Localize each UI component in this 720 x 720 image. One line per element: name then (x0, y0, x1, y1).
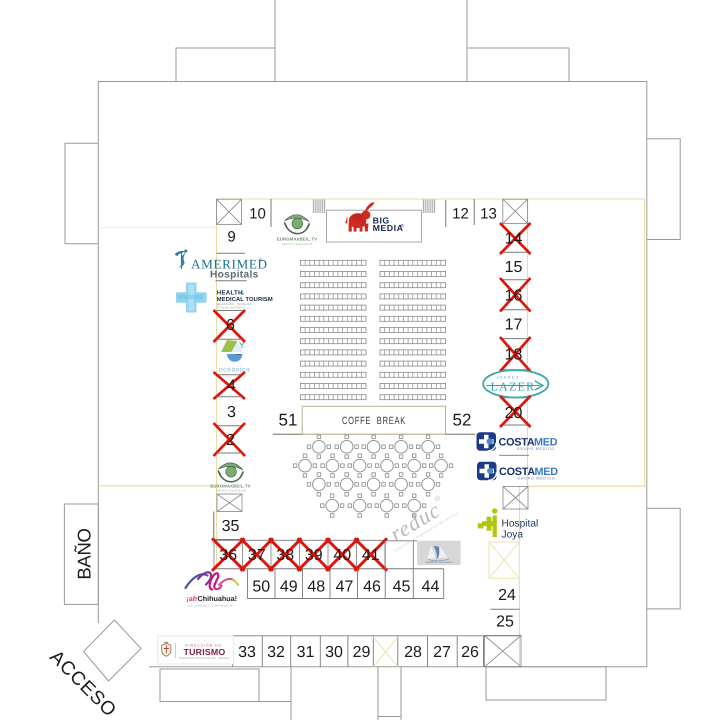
svg-text:9: 9 (227, 228, 235, 245)
svg-text:MEDIA: MEDIA (373, 223, 404, 233)
svg-text:33: 33 (238, 644, 256, 661)
svg-text:Hospitals: Hospitals (210, 270, 259, 281)
svg-text:LAZER: LAZER (491, 380, 536, 394)
svg-text:GRUPO MÉDICO: GRUPO MÉDICO (517, 446, 555, 451)
svg-text:Chihuahua!: Chihuahua! (198, 594, 238, 603)
svg-text:¡ah: ¡ah (187, 595, 198, 603)
svg-text:oceánica: oceánica (219, 367, 250, 374)
svg-text:13: 13 (480, 205, 497, 222)
svg-text:44: 44 (422, 578, 440, 595)
svg-text:6: 6 (226, 317, 235, 334)
svg-text:28: 28 (404, 644, 422, 661)
svg-text:31: 31 (297, 644, 315, 661)
svg-text:3: 3 (227, 404, 236, 421)
svg-text:Joya: Joya (502, 530, 524, 541)
svg-text:25: 25 (496, 614, 514, 631)
svg-text:17: 17 (505, 316, 523, 333)
svg-text:46: 46 (363, 578, 381, 595)
svg-text:RIVIERA NAYARIT: RIVIERA NAYARIT (217, 306, 243, 309)
svg-text:COFFE BREAK: COFFE BREAK (342, 415, 406, 427)
svg-text:GOBIERNO MUNICIPAL DE JIMÉNEZ: GOBIERNO MUNICIPAL DE JIMÉNEZ (179, 656, 230, 660)
svg-text:2: 2 (226, 432, 235, 449)
svg-text:35: 35 (222, 518, 240, 535)
svg-text:40: 40 (333, 547, 351, 564)
svg-text:20: 20 (505, 405, 523, 422)
svg-text:MAZATLAN · SINALOA: MAZATLAN · SINALOA (217, 302, 252, 306)
svg-text:Hospital: Hospital (502, 519, 539, 530)
svg-text:BAÑO: BAÑO (74, 528, 95, 579)
svg-text:36: 36 (219, 547, 237, 564)
svg-text:12: 12 (452, 205, 469, 222)
svg-text:24: 24 (498, 587, 516, 604)
svg-text:29: 29 (353, 644, 371, 661)
svg-text:51: 51 (279, 411, 298, 430)
svg-text:47: 47 (336, 578, 354, 595)
svg-text:49: 49 (280, 578, 298, 595)
svg-text:41: 41 (362, 547, 380, 564)
svg-text:45: 45 (393, 578, 411, 595)
svg-text:GRUPO TELEVISIVO: GRUPO TELEVISIVO (216, 490, 246, 493)
svg-text:15: 15 (505, 259, 523, 276)
svg-text:52: 52 (453, 411, 472, 430)
svg-text:50: 50 (252, 578, 270, 595)
svg-text:GRUPO TELEVISIVO: GRUPO TELEVISIVO (282, 243, 312, 246)
svg-text:32: 32 (267, 644, 285, 661)
svg-text:ES JIMÉNEZ, CHIHÓQUIO: ES JIMÉNEZ, CHIHÓQUIO (188, 603, 232, 607)
svg-text:30: 30 (325, 644, 343, 661)
svg-text:18: 18 (505, 347, 523, 364)
svg-text:27: 27 (433, 644, 451, 661)
svg-text:39: 39 (305, 547, 323, 564)
svg-text:37: 37 (248, 547, 266, 564)
svg-text:&: & (240, 290, 244, 297)
svg-text:EUROMAXBEIL.TV: EUROMAXBEIL.TV (210, 483, 250, 488)
svg-text:PUERTO VALLARTA: PUERTO VALLARTA (425, 561, 452, 564)
svg-text:48: 48 (307, 578, 325, 595)
svg-text:10: 10 (249, 205, 266, 222)
svg-text:26: 26 (461, 644, 479, 661)
svg-text:TURISMO: TURISMO (184, 647, 226, 657)
svg-text:GRUPO MÉDICO: GRUPO MÉDICO (517, 475, 555, 480)
svg-text:38: 38 (276, 547, 294, 564)
svg-text:14: 14 (505, 231, 523, 248)
svg-text:EUROMAXBEIL.TV: EUROMAXBEIL.TV (277, 237, 317, 242)
svg-text:4: 4 (227, 378, 236, 395)
svg-text:16: 16 (505, 288, 523, 305)
